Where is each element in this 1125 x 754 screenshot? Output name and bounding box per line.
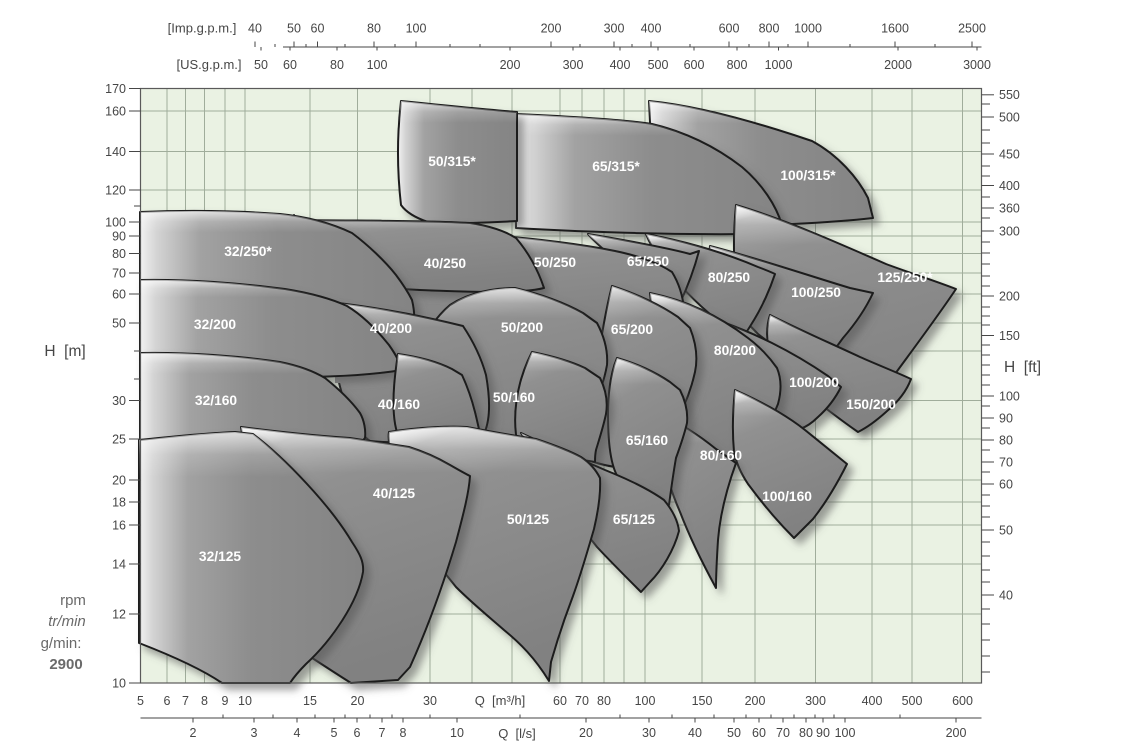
svg-text:70: 70: [575, 694, 589, 708]
svg-text:65/315*: 65/315*: [592, 159, 640, 174]
svg-text:7: 7: [182, 694, 189, 708]
svg-text:70: 70: [776, 726, 790, 740]
svg-text:90: 90: [112, 229, 126, 243]
svg-text:32/250*: 32/250*: [224, 244, 272, 259]
svg-text:2: 2: [190, 726, 197, 740]
svg-text:800: 800: [759, 22, 780, 36]
svg-text:450: 450: [999, 147, 1020, 161]
svg-text:70: 70: [999, 455, 1013, 469]
svg-text:600: 600: [952, 694, 973, 708]
svg-text:150: 150: [692, 694, 713, 708]
svg-text:100/160: 100/160: [762, 489, 812, 504]
svg-text:1600: 1600: [881, 22, 909, 36]
svg-text:5: 5: [137, 694, 144, 708]
svg-text:400: 400: [999, 179, 1020, 193]
svg-text:2000: 2000: [884, 58, 912, 72]
svg-text:10: 10: [450, 726, 464, 740]
svg-text:300: 300: [563, 58, 584, 72]
svg-text:Q [m³/h]: Q [m³/h]: [475, 693, 526, 708]
svg-text:6: 6: [164, 694, 171, 708]
svg-text:5: 5: [331, 726, 338, 740]
svg-text:15: 15: [303, 694, 317, 708]
svg-text:400: 400: [862, 694, 883, 708]
svg-text:4: 4: [294, 726, 301, 740]
svg-text:30: 30: [642, 726, 656, 740]
svg-text:40/250: 40/250: [424, 256, 467, 271]
svg-text:10: 10: [238, 694, 252, 708]
svg-text:40: 40: [688, 726, 702, 740]
svg-text:50: 50: [999, 523, 1013, 537]
svg-text:80/160: 80/160: [700, 448, 743, 463]
svg-text:7: 7: [379, 726, 386, 740]
svg-text:8: 8: [400, 726, 407, 740]
svg-text:20: 20: [112, 473, 126, 487]
svg-text:200: 200: [745, 694, 766, 708]
svg-text:[US.g.p.m.]: [US.g.p.m.]: [176, 57, 241, 72]
svg-text:400: 400: [641, 22, 662, 36]
svg-text:100: 100: [835, 726, 856, 740]
svg-text:50/125: 50/125: [507, 512, 550, 527]
svg-text:125/250*: 125/250*: [877, 270, 933, 285]
svg-text:400: 400: [610, 58, 631, 72]
svg-text:200: 200: [946, 726, 967, 740]
svg-text:25: 25: [112, 432, 126, 446]
svg-text:50: 50: [254, 58, 268, 72]
svg-text:60: 60: [311, 22, 325, 36]
svg-text:80/250: 80/250: [708, 270, 751, 285]
svg-text:70: 70: [112, 266, 126, 280]
svg-text:18: 18: [112, 495, 126, 509]
svg-text:60: 60: [752, 726, 766, 740]
svg-text:6: 6: [354, 726, 361, 740]
svg-text:50: 50: [112, 316, 126, 330]
svg-text:200: 200: [541, 22, 562, 36]
svg-text:3: 3: [251, 726, 258, 740]
svg-text:100/250: 100/250: [791, 285, 841, 300]
svg-text:100: 100: [999, 389, 1020, 403]
svg-text:3000: 3000: [963, 58, 991, 72]
svg-text:60: 60: [553, 694, 567, 708]
svg-text:500: 500: [648, 58, 669, 72]
svg-text:600: 600: [684, 58, 705, 72]
svg-text:40/160: 40/160: [378, 397, 421, 412]
svg-text:30: 30: [423, 694, 437, 708]
svg-text:32/160: 32/160: [195, 393, 238, 408]
svg-text:60: 60: [112, 287, 126, 301]
svg-text:50/250: 50/250: [534, 255, 577, 270]
svg-text:40: 40: [999, 588, 1013, 602]
svg-text:65/250: 65/250: [627, 254, 670, 269]
svg-text:50/200: 50/200: [501, 320, 544, 335]
svg-text:100: 100: [635, 694, 656, 708]
svg-text:80: 80: [799, 726, 813, 740]
svg-text:160: 160: [105, 104, 126, 118]
svg-text:500: 500: [999, 110, 1020, 124]
svg-text:300: 300: [604, 22, 625, 36]
svg-text:550: 550: [999, 88, 1020, 102]
svg-text:rpm: rpm: [60, 592, 86, 609]
svg-text:150/200: 150/200: [846, 397, 896, 412]
svg-text:140: 140: [105, 145, 126, 159]
svg-text:50: 50: [287, 22, 301, 36]
svg-text:9: 9: [222, 694, 229, 708]
svg-text:65/125: 65/125: [613, 512, 656, 527]
svg-text:800: 800: [727, 58, 748, 72]
svg-text:30: 30: [112, 394, 126, 408]
svg-text:2900: 2900: [49, 656, 82, 673]
svg-text:65/200: 65/200: [611, 322, 654, 337]
svg-text:50/160: 50/160: [493, 390, 536, 405]
svg-text:80: 80: [330, 58, 344, 72]
svg-text:100: 100: [406, 22, 427, 36]
svg-text:80: 80: [597, 694, 611, 708]
svg-text:16: 16: [112, 518, 126, 532]
svg-text:80: 80: [112, 247, 126, 261]
svg-text:80/200: 80/200: [714, 343, 757, 358]
svg-text:60: 60: [999, 477, 1013, 491]
svg-text:100/200: 100/200: [789, 375, 839, 390]
svg-text:2500: 2500: [958, 22, 986, 36]
svg-text:100: 100: [367, 58, 388, 72]
svg-text:20: 20: [579, 726, 593, 740]
svg-text:32/125: 32/125: [199, 549, 242, 564]
svg-text:200: 200: [500, 58, 521, 72]
svg-text:90: 90: [816, 726, 830, 740]
svg-text:g/min:: g/min:: [41, 635, 82, 652]
svg-text:50/315*: 50/315*: [428, 154, 476, 169]
svg-text:1000: 1000: [765, 58, 793, 72]
svg-text:90: 90: [999, 411, 1013, 425]
svg-text:[Imp.g.p.m.]: [Imp.g.p.m.]: [168, 21, 237, 36]
svg-text:20: 20: [351, 694, 365, 708]
svg-text:150: 150: [999, 329, 1020, 343]
svg-text:1000: 1000: [794, 22, 822, 36]
svg-text:32/200: 32/200: [194, 317, 237, 332]
svg-text:H [m]: H [m]: [44, 343, 85, 360]
svg-text:tr/min: tr/min: [48, 613, 86, 630]
svg-text:65/160: 65/160: [626, 433, 669, 448]
svg-text:H [ft]: H [ft]: [1004, 359, 1041, 376]
svg-text:200: 200: [999, 289, 1020, 303]
svg-text:100: 100: [105, 215, 126, 229]
svg-text:100/315*: 100/315*: [780, 168, 836, 183]
svg-text:500: 500: [902, 694, 923, 708]
svg-text:360: 360: [999, 201, 1020, 215]
svg-text:40: 40: [248, 22, 262, 36]
svg-text:50: 50: [727, 726, 741, 740]
svg-text:120: 120: [105, 183, 126, 197]
svg-text:10: 10: [112, 676, 126, 690]
svg-text:170: 170: [105, 82, 126, 96]
svg-text:12: 12: [112, 607, 126, 621]
svg-text:14: 14: [112, 557, 126, 571]
svg-text:600: 600: [719, 22, 740, 36]
svg-text:Q [l/s]: Q [l/s]: [498, 726, 536, 741]
svg-text:40/200: 40/200: [370, 321, 413, 336]
svg-text:80: 80: [367, 22, 381, 36]
svg-text:80: 80: [999, 433, 1013, 447]
svg-text:40/125: 40/125: [373, 486, 416, 501]
svg-text:300: 300: [999, 224, 1020, 238]
svg-text:300: 300: [805, 694, 826, 708]
svg-text:60: 60: [283, 58, 297, 72]
svg-text:8: 8: [201, 694, 208, 708]
